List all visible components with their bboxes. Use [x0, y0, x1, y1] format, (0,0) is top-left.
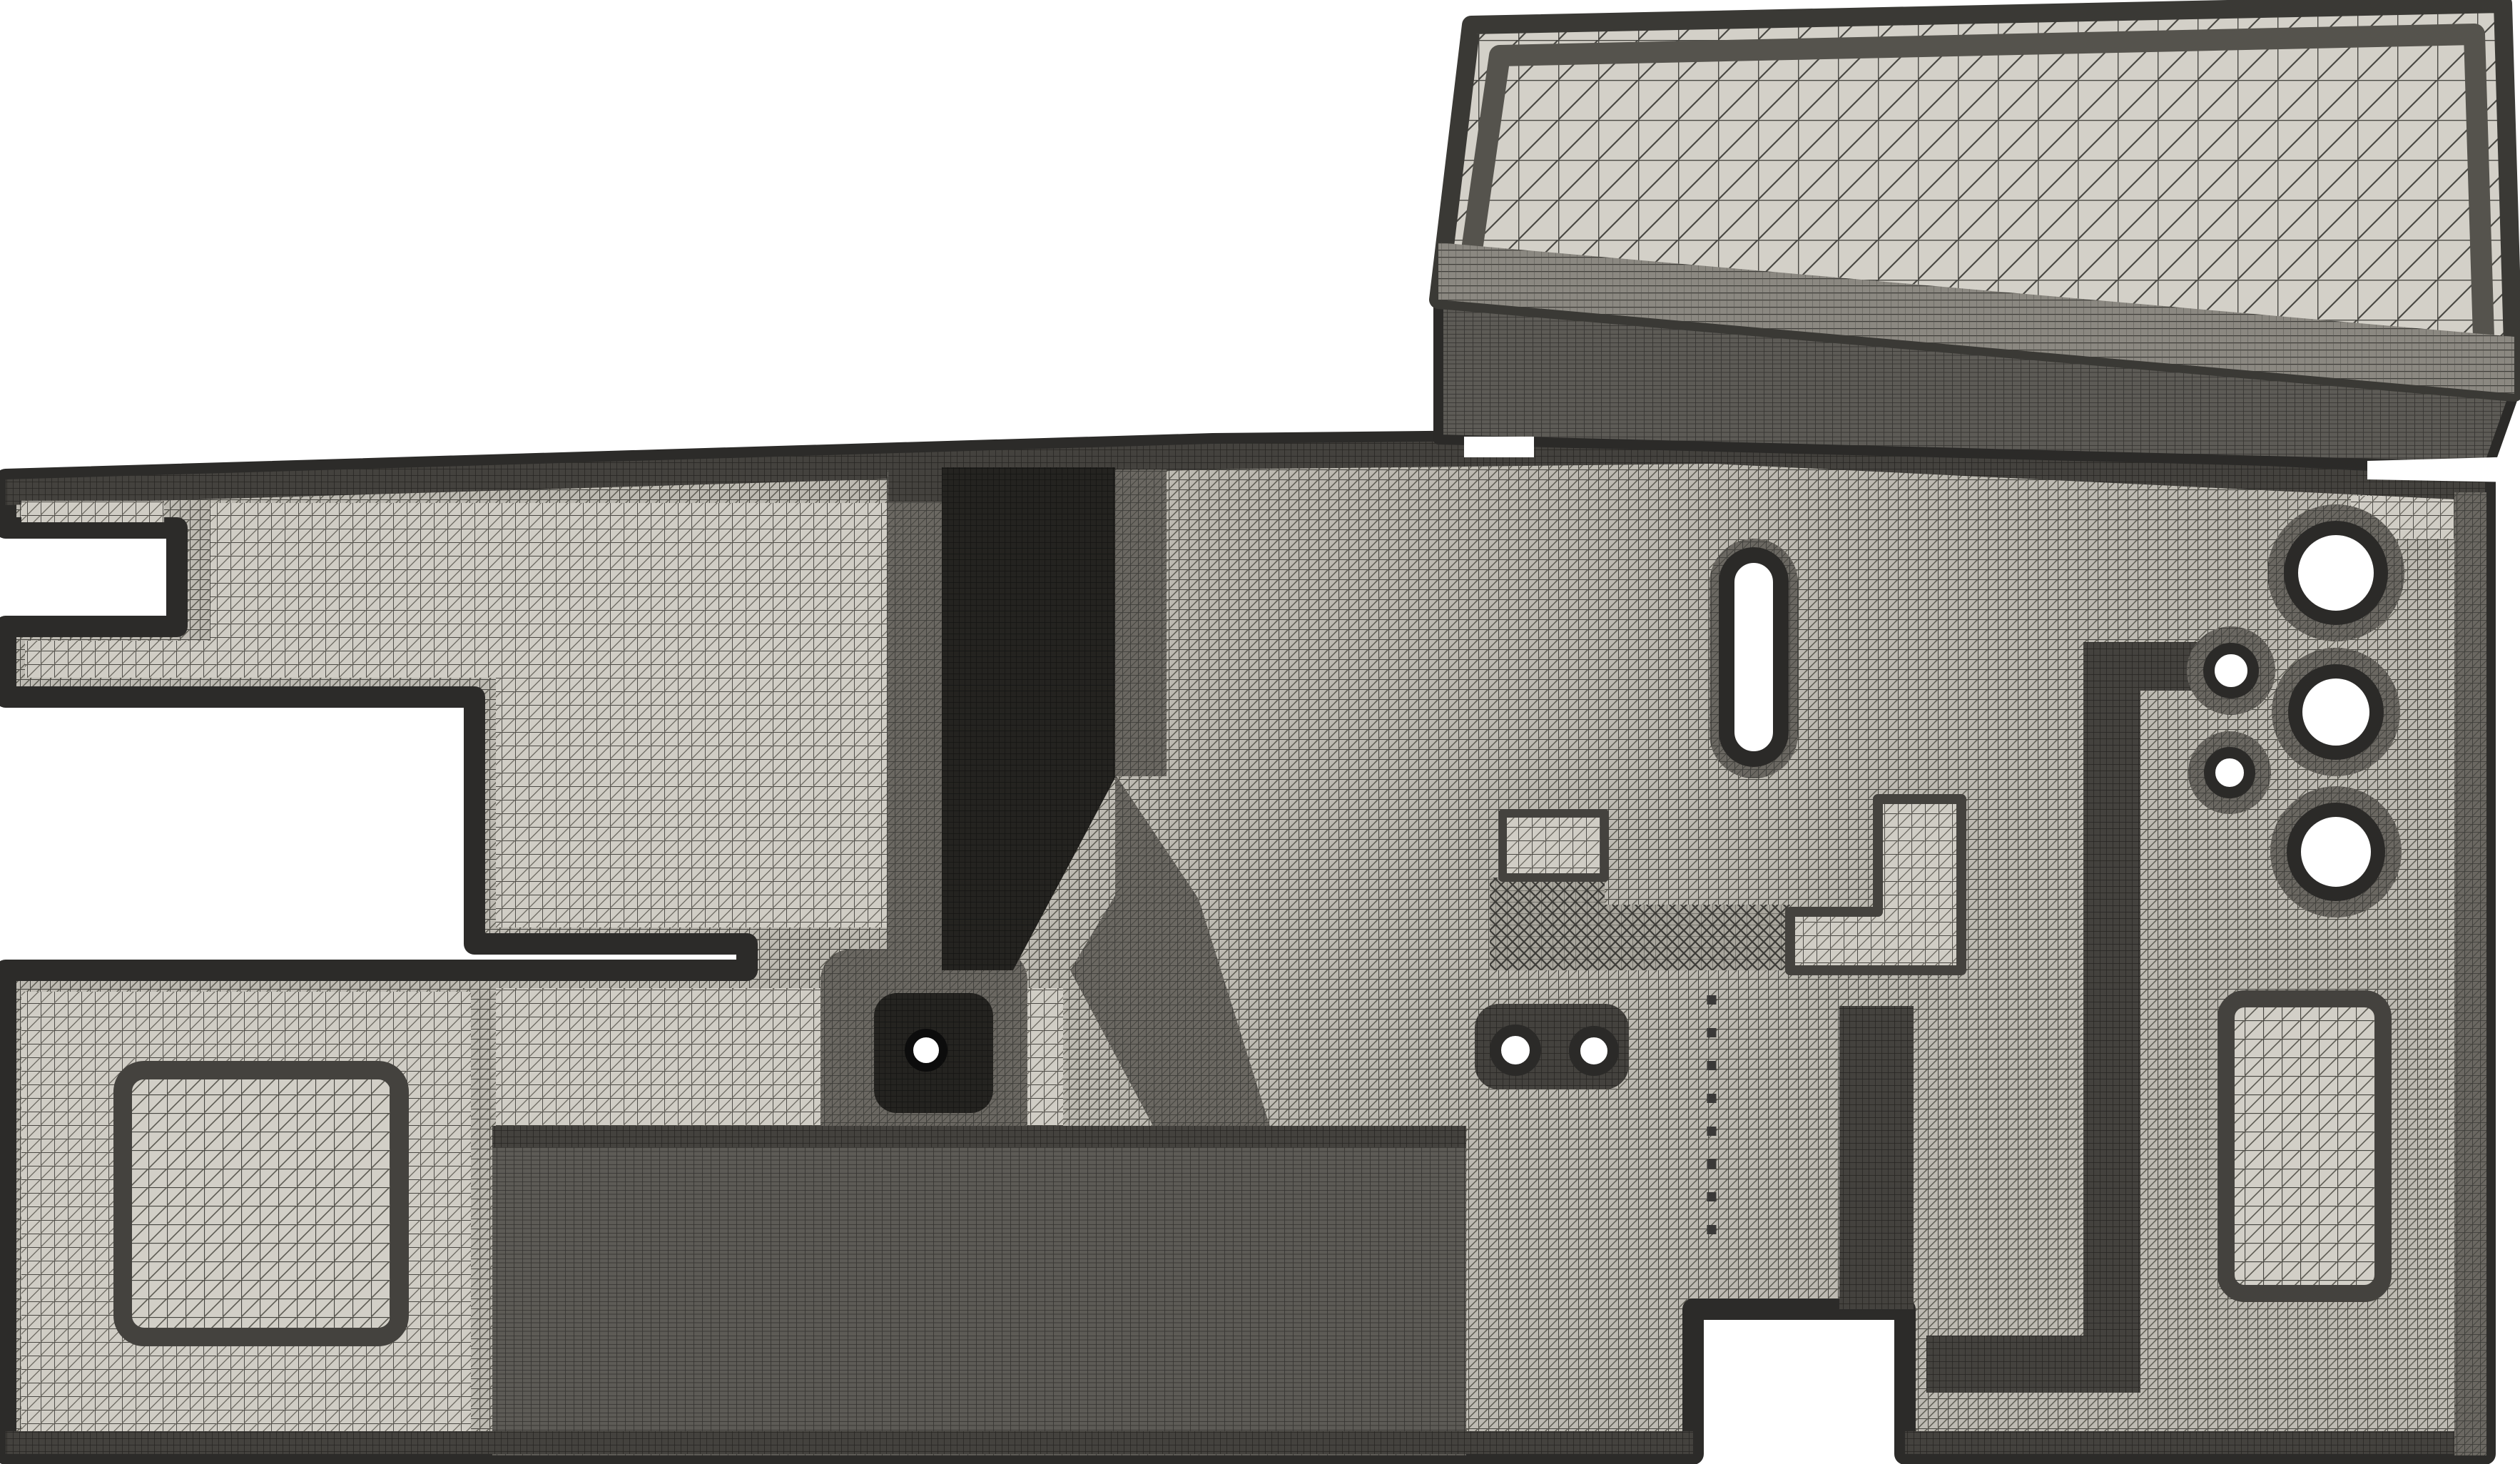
dark-bar-above-notch: [1839, 1006, 1914, 1309]
plate-bottom-border-right: [1905, 1431, 2485, 1454]
twin-hole-right: [1575, 1032, 1613, 1070]
column-left-sheath: [887, 469, 942, 962]
dotted-refine-trail: [1707, 1127, 1717, 1136]
dotted-refine-trail: [1707, 1192, 1717, 1201]
fem-mesh-figure: [0, 0, 2520, 1464]
dotted-refine-trail: [1707, 1159, 1717, 1169]
via-hole-bottom: [2294, 810, 2378, 894]
bond-slit-right: [2367, 457, 2520, 482]
right-edge-inner-band: [2454, 492, 2486, 1455]
via-hole-small-lower: [2210, 753, 2250, 793]
lower-prong-light-mesh: [25, 641, 471, 678]
bottom-rectangle-top-fringe: [492, 1126, 1466, 1147]
bottom-right-pad: [2226, 999, 2383, 1293]
upper-prong-light-mesh: [21, 501, 164, 522]
left-body-light-mesh: [210, 503, 887, 927]
bond-slit-left: [1464, 437, 1534, 457]
bottom-left-pad: [123, 1070, 400, 1337]
dotted-refine-trail: [1707, 995, 1717, 1005]
capsule-slot-hole: [1727, 555, 1781, 759]
dotted-refine-trail: [1707, 1028, 1717, 1037]
via-hole-middle: [2295, 671, 2377, 753]
copper-trace-vertical-bar: [2083, 642, 2140, 1391]
dotted-refine-trail: [1707, 1094, 1717, 1103]
dotted-refine-trail: [1707, 1061, 1717, 1070]
plate-bottom-border-left: [6, 1431, 1693, 1454]
column-right-sheath: [1115, 469, 1167, 776]
via-hole-small-upper: [2209, 649, 2253, 693]
twin-hole-left: [1495, 1030, 1535, 1070]
copper-trace-bottom-leg: [1926, 1336, 2140, 1393]
bottom-dark-rectangle: [492, 1126, 1466, 1455]
via-hole-top: [2291, 528, 2381, 618]
embossed-small-rect: [1503, 813, 1605, 878]
solder-pad-pin-hole: [909, 1033, 943, 1067]
dotted-refine-trail: [1707, 1225, 1717, 1234]
mesh-viewport: [0, 0, 2520, 1464]
